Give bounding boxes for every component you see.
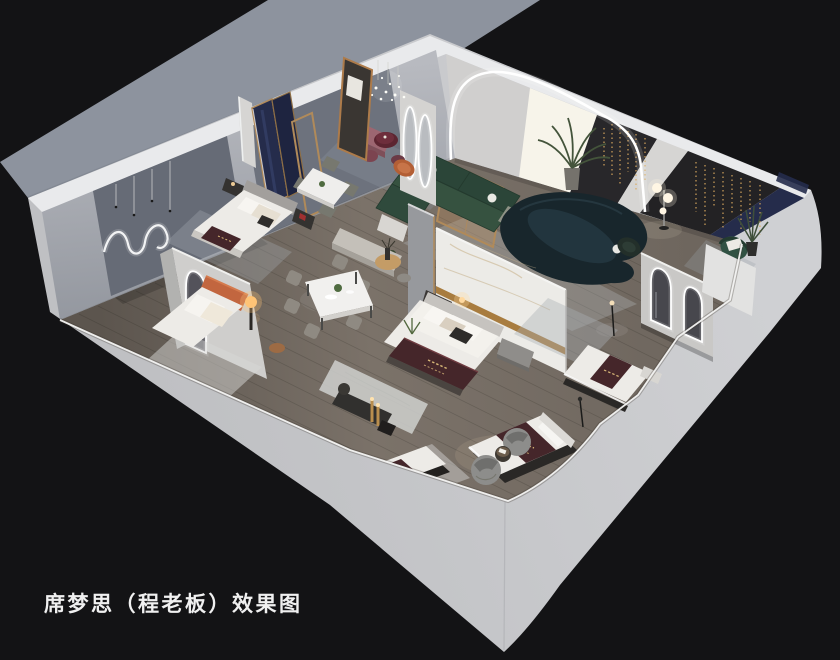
round-side-table-2 xyxy=(495,446,511,462)
centerpiece xyxy=(334,284,342,292)
stool xyxy=(397,274,411,283)
wall-sconce xyxy=(459,297,465,303)
render-canvas: 席梦思（程老板）效果图 xyxy=(0,0,840,660)
caption-text: 席梦思（程老板）效果图 xyxy=(44,588,303,618)
burgundy-coffee-table xyxy=(374,132,398,148)
wood-stool xyxy=(269,343,285,353)
barrel-chair-1 xyxy=(471,455,501,485)
showroom-3d-render xyxy=(0,0,840,660)
display-frame-artwork xyxy=(338,58,372,160)
oval-led-mirrors xyxy=(400,90,436,206)
